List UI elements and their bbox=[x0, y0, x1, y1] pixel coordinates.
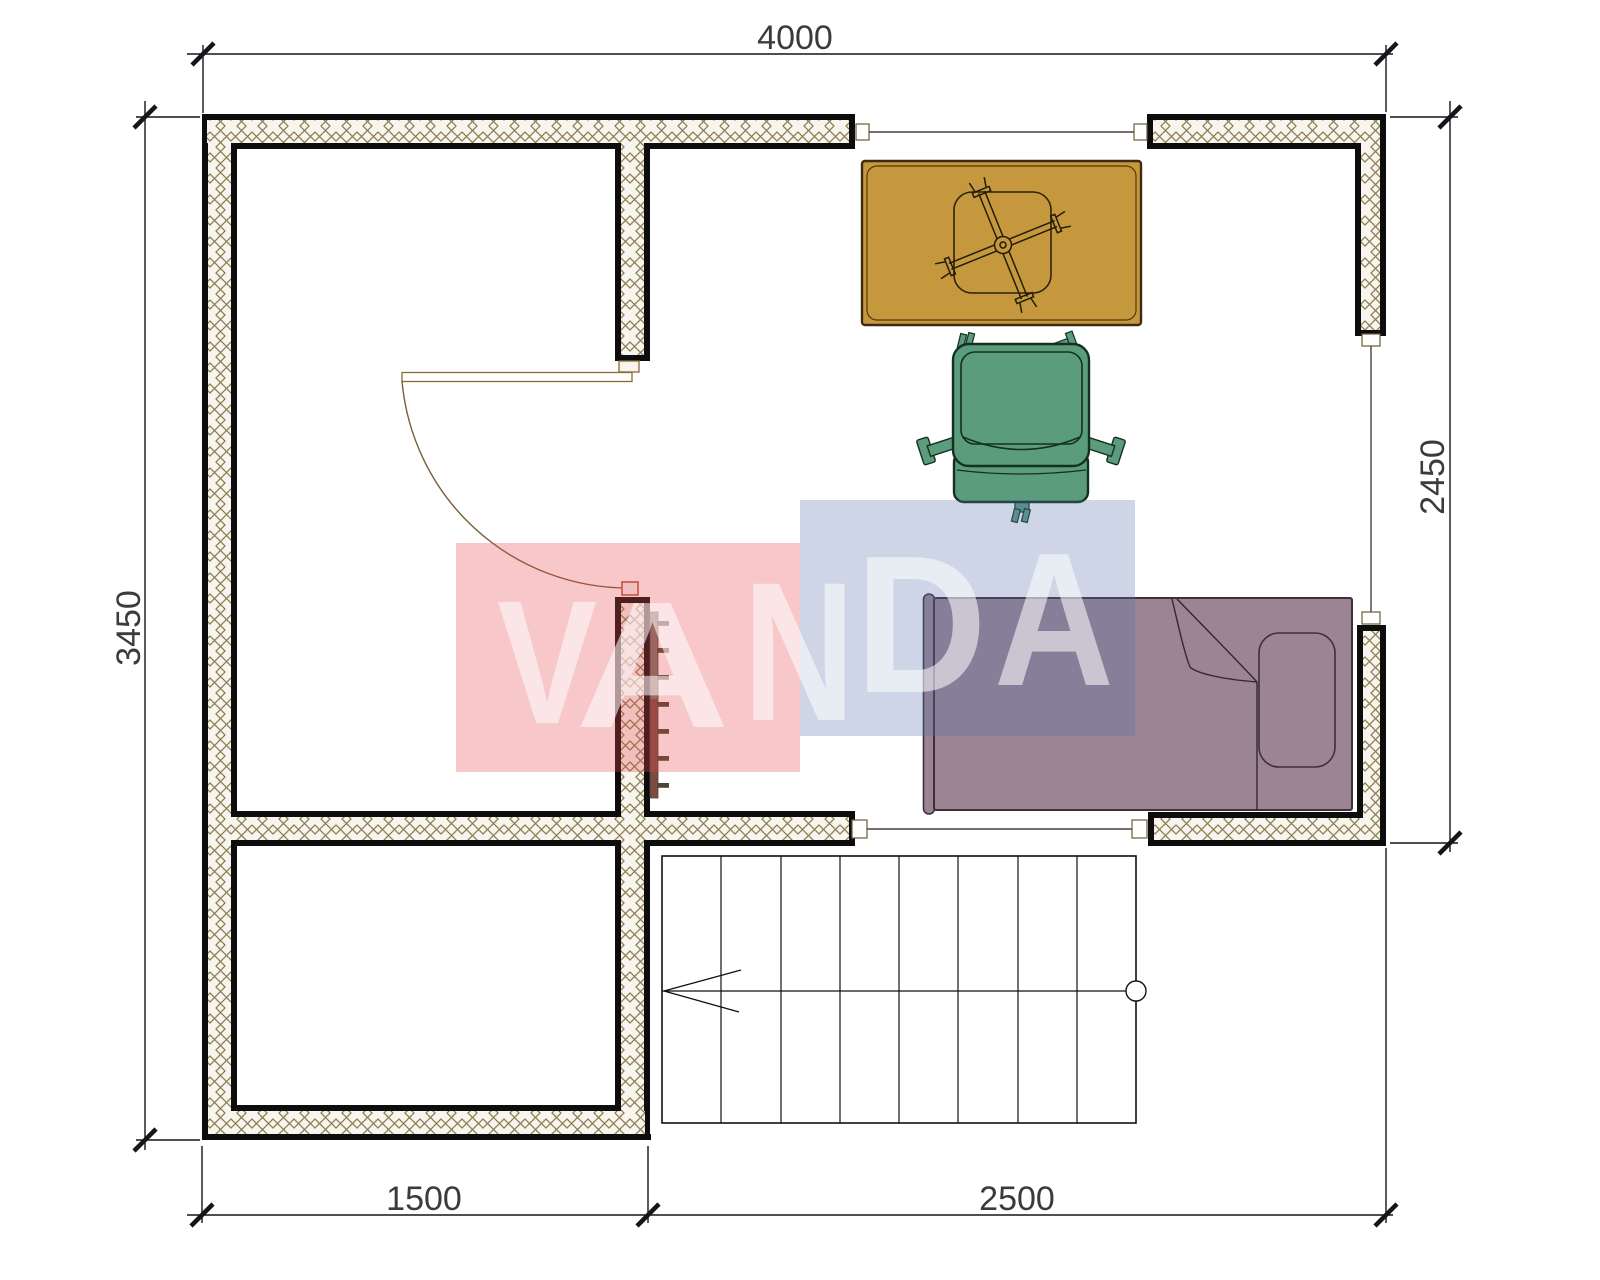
svg-text:A: A bbox=[575, 565, 730, 766]
svg-text:1500: 1500 bbox=[386, 1180, 462, 1218]
svg-text:N: N bbox=[743, 541, 855, 762]
svg-text:3450: 3450 bbox=[110, 590, 148, 666]
svg-text:A: A bbox=[994, 514, 1114, 726]
svg-text:2450: 2450 bbox=[1414, 439, 1452, 515]
svg-text:D: D bbox=[855, 515, 987, 734]
svg-text:4000: 4000 bbox=[757, 19, 833, 57]
svg-text:2500: 2500 bbox=[979, 1180, 1055, 1218]
